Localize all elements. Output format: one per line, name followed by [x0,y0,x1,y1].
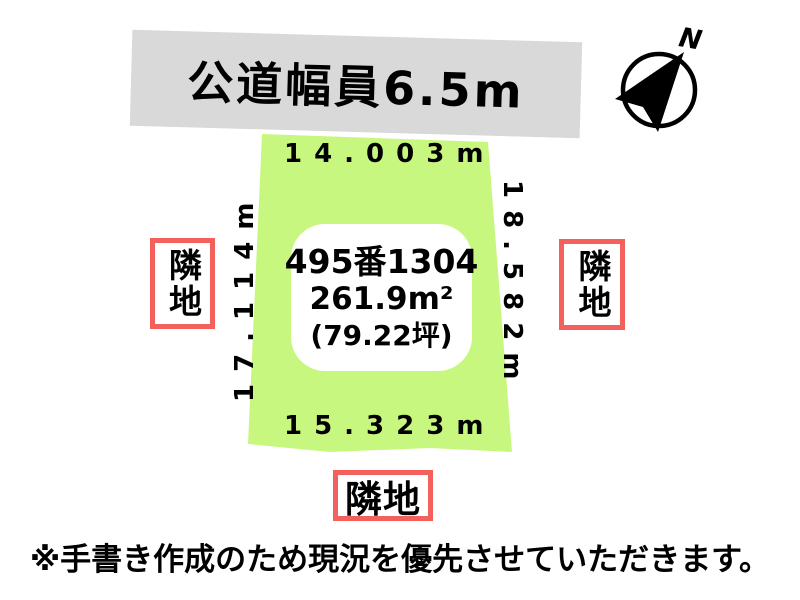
dimension-bottom: 15.323m [284,411,495,441]
road-banner: 公道幅員6.5m [130,30,583,139]
neighbor-label-left: 隣地 [150,238,215,329]
handwritten-disclaimer: ※手書き作成のため現況を優先させていただきます。 [30,534,770,579]
parcel-number: 495番1304 [285,242,479,282]
parcel-info-box: 495番1304 261.9m² (79.22坪) [291,224,472,371]
neighbor-right-text: 隣地 [568,249,616,321]
dimension-right: 18.582m [497,180,527,390]
compass-north-label: N [676,22,704,56]
neighbor-left-text: 隣地 [159,248,207,320]
dimension-left: 17.114m [230,192,260,402]
road-width-label: 公道幅員6.5m [186,46,525,121]
neighbor-bottom-text: 隣地 [345,469,421,523]
parcel-area-sqm: 261.9m² [310,281,454,318]
neighbor-label-bottom: 隣地 [333,470,433,521]
land-plot-diagram: 公道幅員6.5m N 14.003m 15.323m 17.114m 18.58… [0,0,800,600]
dimension-top: 14.003m [284,139,495,169]
parcel-area-tsubo: (79.22坪) [310,318,452,353]
north-arrow-icon [615,52,684,132]
neighbor-label-right: 隣地 [559,239,625,330]
